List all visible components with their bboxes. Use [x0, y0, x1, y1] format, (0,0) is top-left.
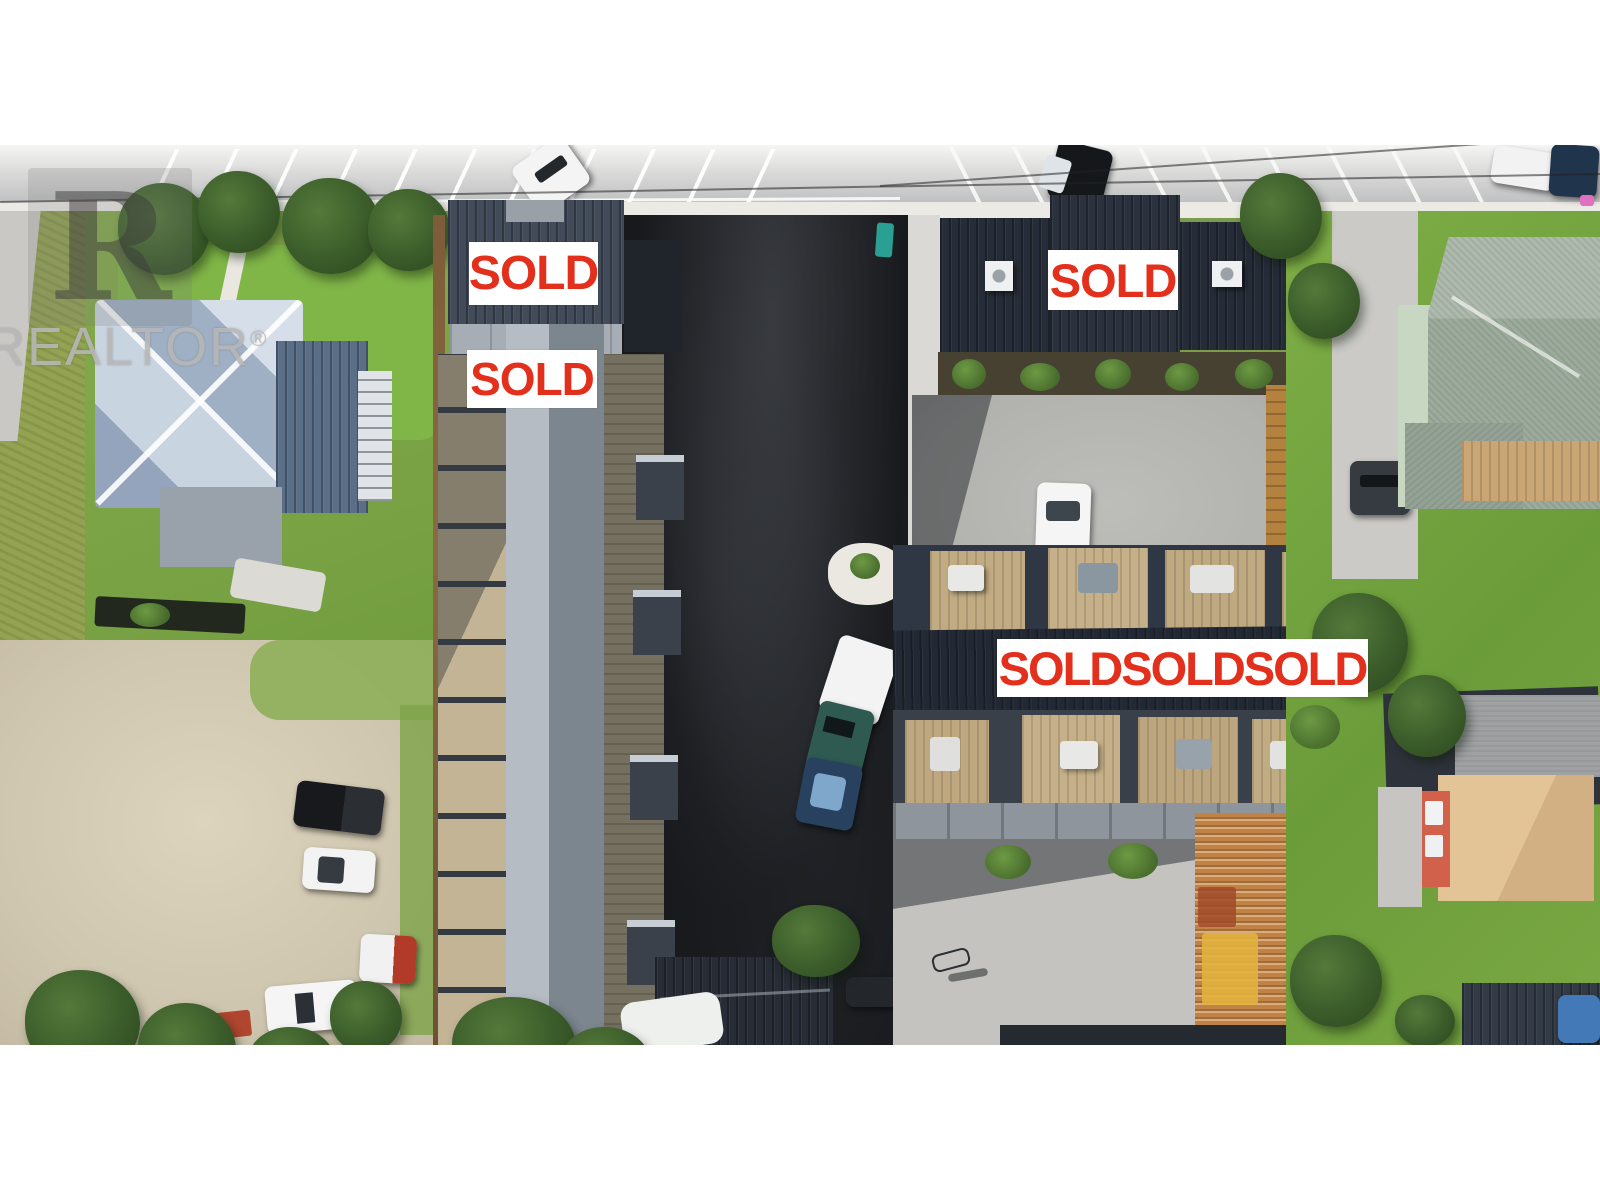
townhouse-balconies [438, 354, 506, 1045]
tree [1290, 935, 1382, 1027]
patio-furniture [1176, 739, 1212, 769]
realtor-logo-watermark: R [28, 168, 192, 326]
patio-furniture [1190, 565, 1234, 593]
sold-sign-label: SOLD [1050, 257, 1177, 304]
aerial-listing-photo: R REALTOR® SOLD SOLD SOLD SOLDSOLDSOLD [0, 0, 1600, 1200]
patio-furniture [930, 737, 960, 771]
blue-car-roof [809, 772, 847, 811]
sold-sign-label: SOLD [469, 250, 598, 298]
brown-house-tan-roof [1438, 775, 1594, 901]
townhouse-bumpout [633, 590, 681, 655]
patio-planter [1108, 843, 1158, 879]
house-garage-roof [160, 487, 282, 567]
townhouse-bumpout [630, 755, 678, 820]
pergola-crate [1198, 887, 1236, 927]
hvac-unit [1212, 261, 1242, 287]
sold-sign-left-upper: SOLD [469, 242, 598, 305]
tree [1240, 173, 1322, 259]
shrub [1095, 359, 1131, 389]
sold-sign-right-lower: SOLDSOLDSOLD [997, 639, 1368, 697]
shrub [1020, 363, 1060, 391]
sold-sign-left-lower: SOLD [467, 350, 597, 408]
white-pickup-glass [295, 992, 316, 1023]
patio-furniture [1078, 563, 1118, 593]
trailer-red [359, 934, 417, 985]
house-wing-roof [276, 341, 368, 513]
tree [198, 171, 280, 253]
pink-object [1580, 195, 1594, 206]
yellow-equipment [1202, 933, 1258, 1005]
top-white-band [0, 0, 1600, 145]
patio-furniture [948, 565, 984, 591]
shrub [1165, 363, 1199, 391]
tree [1288, 263, 1360, 339]
brown-house-driveway [1378, 787, 1422, 907]
patio-planter [985, 845, 1031, 879]
bottom-white-band [0, 1045, 1600, 1200]
island-shrub [850, 553, 880, 579]
realtor-text-watermark: REALTOR® [0, 316, 268, 378]
sold-sign-label: SOLDSOLDSOLD [999, 645, 1367, 692]
blue-car-bottom-right [1558, 995, 1600, 1043]
bush [1290, 705, 1340, 749]
green-house-deck [1462, 441, 1600, 501]
realtor-text: REALTOR [0, 317, 250, 377]
townhouse-bumpout [636, 455, 684, 520]
white-car-glass [317, 856, 345, 884]
white-car-courtyard-glass [1046, 501, 1080, 521]
townhouse-annex-shadow [624, 240, 682, 352]
shrub [952, 359, 986, 389]
townhouse-main-roof [506, 324, 604, 1045]
red-wall-window [1425, 835, 1443, 857]
house-deck-railing [358, 371, 392, 501]
brown-house-shingle [1455, 695, 1600, 777]
tree [1388, 675, 1466, 757]
registered-mark: ® [250, 326, 268, 351]
townhouse-top-notch [506, 200, 564, 222]
sold-sign-right-upper: SOLD [1048, 250, 1178, 310]
dark-car-glass [1360, 475, 1400, 487]
tree [1395, 995, 1455, 1045]
garden-greens [130, 603, 170, 627]
tree [772, 905, 860, 977]
sold-sign-label: SOLD [470, 356, 594, 402]
aerial-photo [0, 145, 1600, 1045]
red-wall-window [1425, 801, 1443, 825]
patio-furniture [1060, 741, 1098, 769]
realtor-logo-letter: R [49, 160, 172, 334]
teal-bin [875, 222, 894, 257]
tree [282, 178, 380, 274]
navy-car-street-right [1548, 145, 1600, 199]
hvac-unit [985, 261, 1013, 291]
rooftop-deck [930, 551, 1025, 633]
